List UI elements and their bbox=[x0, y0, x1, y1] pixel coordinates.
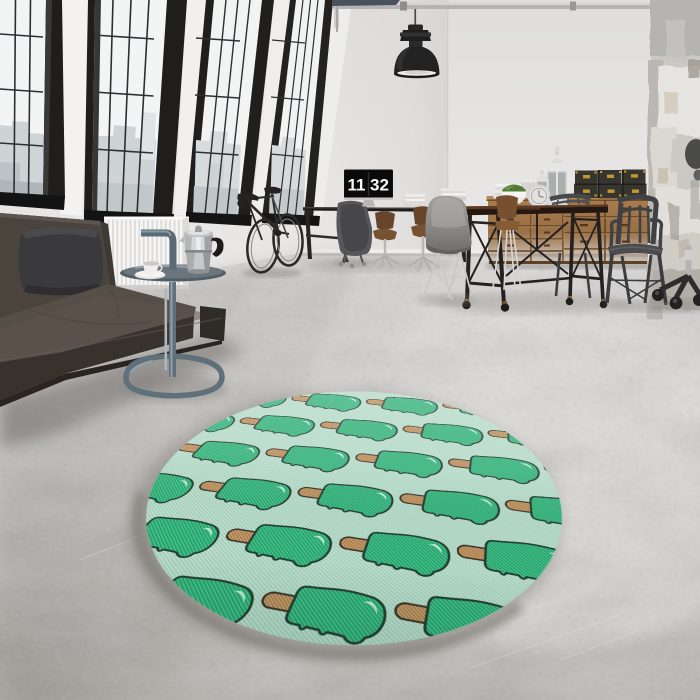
svg-text:32: 32 bbox=[370, 176, 389, 195]
svg-text:11: 11 bbox=[348, 176, 366, 195]
